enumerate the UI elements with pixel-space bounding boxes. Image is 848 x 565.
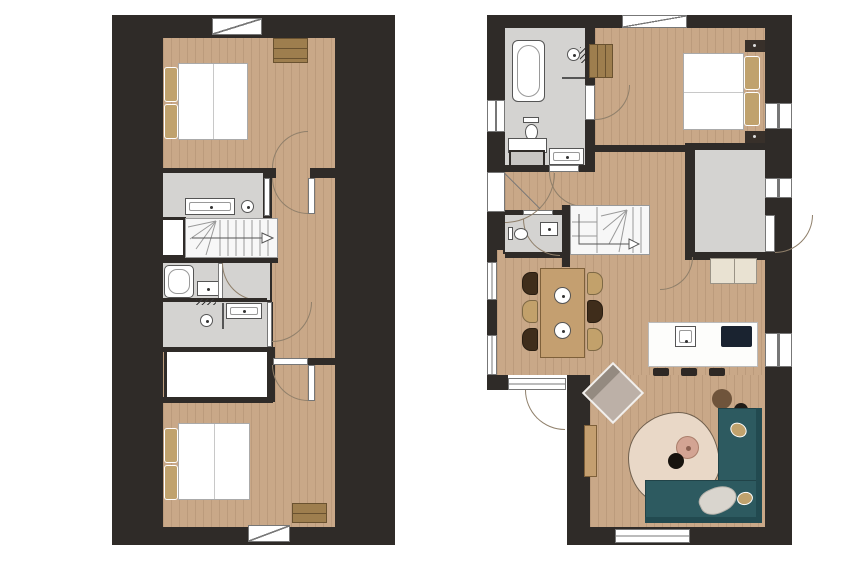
patio-door-opening — [508, 378, 566, 390]
bathtub-icon — [164, 265, 194, 298]
duvet-seam — [213, 64, 214, 139]
dining-chair — [522, 328, 538, 351]
bathtub-icon — [512, 40, 545, 102]
interior-wall — [685, 143, 765, 150]
toilet-icon — [514, 228, 528, 240]
bed-pillow — [164, 104, 178, 139]
wardrobe — [273, 38, 308, 63]
dining-chair — [587, 300, 603, 323]
door-leaf — [308, 365, 315, 401]
bed — [178, 423, 250, 500]
window-symbol — [212, 18, 262, 35]
sofa-backrest — [756, 408, 762, 523]
staircase — [570, 205, 650, 255]
bed — [178, 63, 248, 140]
storage-floor — [695, 150, 765, 252]
window-symbol — [765, 103, 792, 129]
sideboard — [509, 150, 545, 167]
shower-divider — [222, 303, 224, 329]
wardrobe — [589, 44, 613, 78]
bar-stool — [681, 368, 697, 376]
interior-wall — [163, 397, 273, 403]
door-leaf — [264, 178, 270, 216]
pouf — [712, 389, 732, 409]
plate-icon — [554, 287, 571, 304]
floor-plan-left — [112, 15, 395, 545]
door-swing-arc — [775, 215, 813, 253]
entry-door-opening — [487, 172, 505, 212]
bar-stool — [653, 368, 669, 376]
duvet-seam — [214, 424, 215, 499]
closet — [163, 220, 183, 255]
cooktop-icon — [721, 326, 752, 347]
nightstand — [745, 131, 765, 143]
door-opening — [585, 85, 595, 120]
sink-icon — [540, 222, 558, 236]
floor-plan-right — [487, 15, 792, 545]
tv-sideboard — [584, 425, 597, 477]
dining-table — [540, 268, 585, 358]
exterior-wall — [487, 375, 508, 390]
window-symbol — [765, 333, 792, 367]
bed-pillow — [164, 465, 178, 500]
toilet-icon — [523, 117, 539, 123]
towel-radiator-icon — [580, 47, 585, 63]
exterior-wall — [765, 15, 792, 545]
door-swing-arc — [525, 390, 565, 430]
dining-chair — [587, 272, 603, 295]
bed-pillow — [744, 56, 760, 90]
sink-icon — [226, 303, 262, 319]
shower-divider — [562, 77, 585, 79]
window-symbol — [248, 525, 290, 542]
kitchen-sink-icon — [675, 326, 696, 347]
interior-wall — [310, 168, 335, 178]
window-symbol — [622, 15, 687, 28]
door-opening — [549, 165, 579, 172]
wardrobe — [292, 503, 327, 523]
exterior-door-leaf — [765, 215, 775, 252]
interior-wall — [685, 143, 695, 255]
bed-pillow — [744, 92, 760, 126]
shower-head-icon — [241, 200, 254, 213]
sink-icon — [197, 281, 219, 296]
shower-head-icon — [567, 48, 580, 61]
window-symbol — [615, 529, 690, 543]
duvet-seam — [684, 92, 743, 93]
dining-chair — [522, 272, 538, 295]
cabinet-divider — [734, 259, 735, 283]
towel-radiator-icon — [196, 299, 216, 305]
sink-icon — [549, 148, 584, 165]
storage-room — [167, 352, 267, 397]
plate-icon — [554, 322, 571, 339]
exterior-wall — [487, 15, 505, 250]
sink-icon — [185, 198, 235, 215]
shower-drain-icon — [200, 314, 213, 327]
window-symbol — [487, 262, 497, 300]
door-leaf — [308, 178, 315, 214]
door-opening — [273, 358, 308, 365]
bed-pillow — [164, 67, 178, 102]
interior-wall — [595, 145, 685, 152]
dining-chair — [587, 328, 603, 351]
bar-stool — [709, 368, 725, 376]
dining-chair — [522, 300, 538, 323]
staircase — [185, 218, 278, 258]
kitchen-cabinet — [710, 258, 757, 284]
interior-wall — [505, 252, 570, 258]
toilet-icon — [508, 227, 513, 240]
side-table — [668, 453, 684, 469]
sofa-backrest — [645, 517, 762, 523]
nightstand — [745, 40, 765, 52]
floor-plan-image — [0, 0, 848, 565]
bed — [683, 53, 744, 130]
window-symbol — [487, 335, 497, 375]
window-symbol — [487, 100, 505, 132]
stairs-arrow-icon — [629, 239, 639, 249]
bed-pillow — [164, 428, 178, 463]
window-symbol — [765, 178, 792, 198]
